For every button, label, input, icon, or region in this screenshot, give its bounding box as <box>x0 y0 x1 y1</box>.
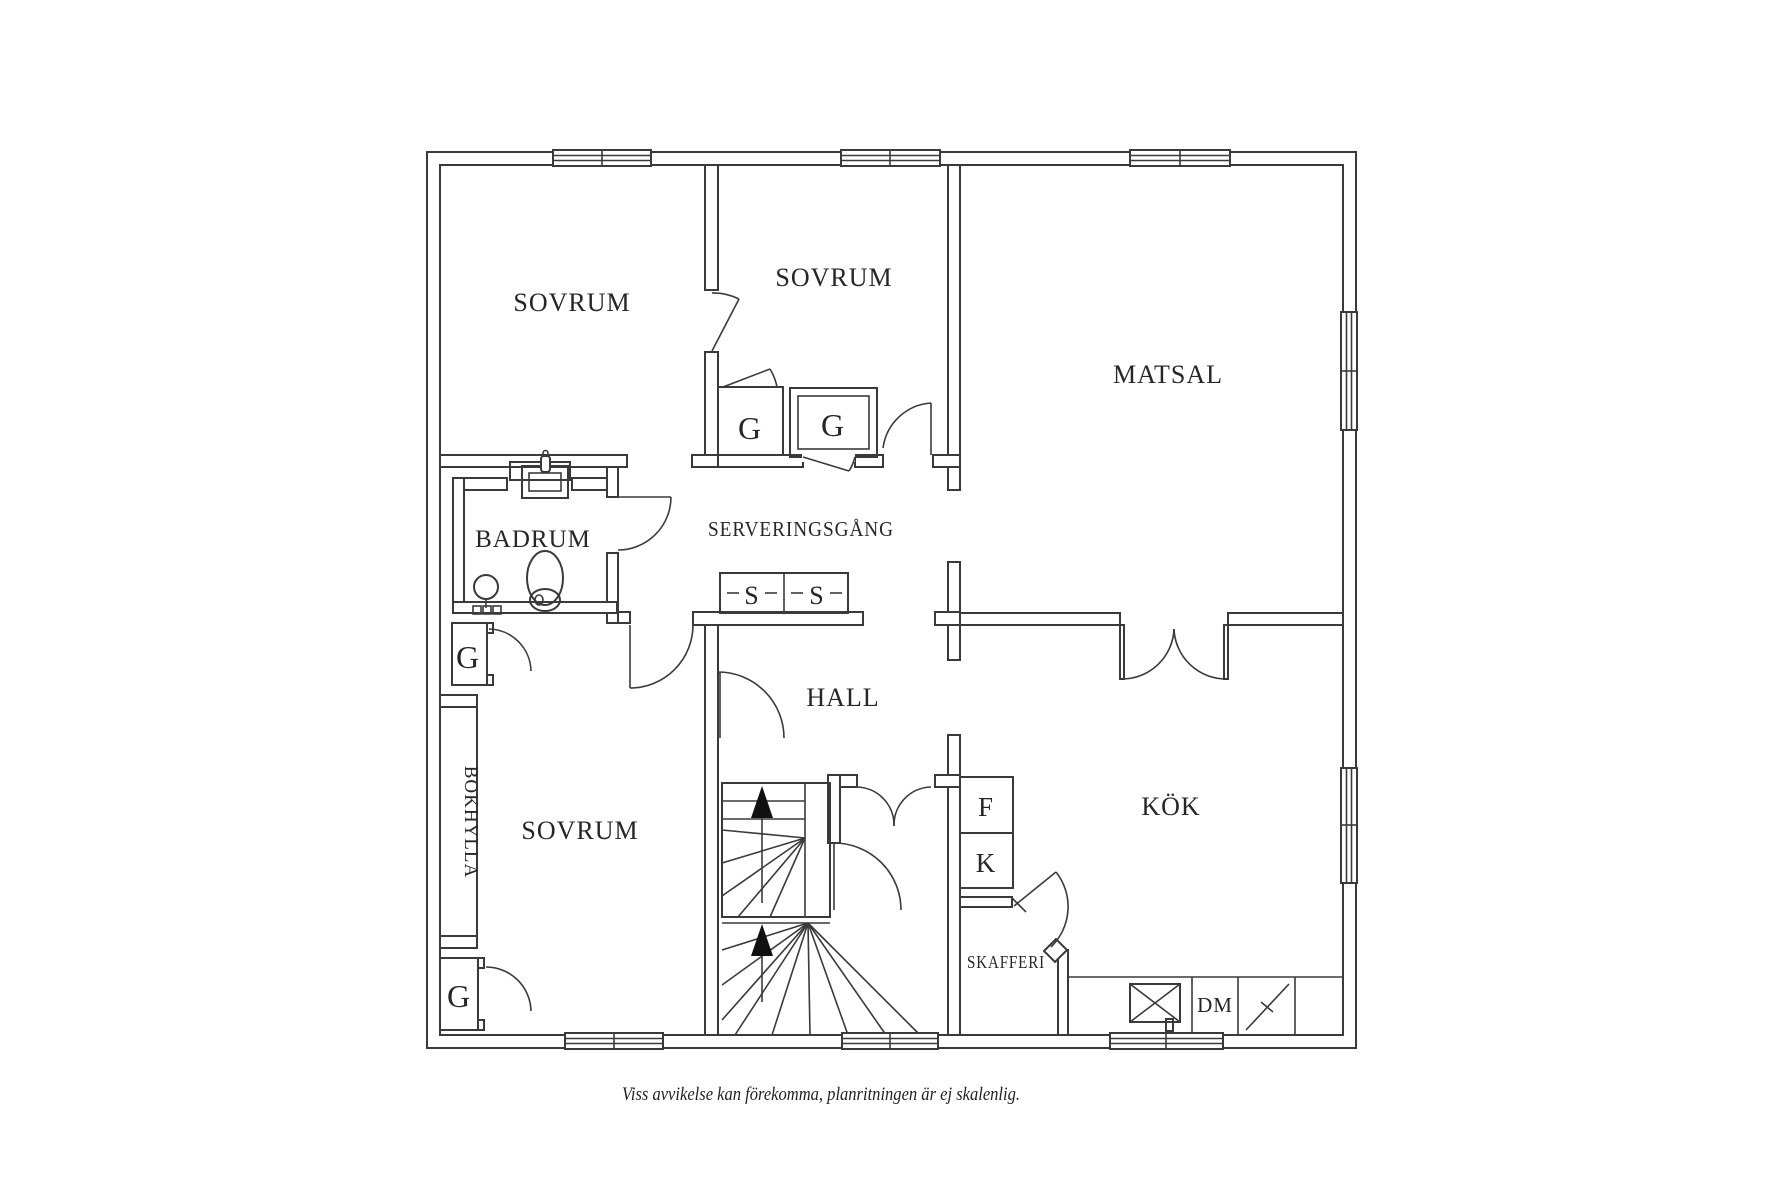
room-label-dining: MATSAL <box>1113 360 1223 389</box>
double-door-dining-right-leaf <box>1224 625 1228 679</box>
window-right-dining <box>1341 312 1357 430</box>
floorplan-drawing: SOVRUM SOVRUM MATSAL BADRUM SERVERINGSGÅ… <box>0 0 1780 1187</box>
room-label-kitchen: KÖK <box>1141 792 1200 821</box>
pedestal-basin-icon <box>474 575 498 599</box>
kitchen-faucet-icon <box>1166 1019 1173 1031</box>
faucet-icon <box>541 456 550 472</box>
room-label-bedroom-topleft: SOVRUM <box>513 288 630 317</box>
disclaimer-caption: Viss avvikelse kan förekomma, planritnin… <box>622 1084 1020 1105</box>
cabinet-s2-label: S <box>809 581 824 610</box>
window-bottom-kitchen <box>1110 1033 1223 1049</box>
room-label-bookshelf: BOKHYLLA <box>460 766 481 879</box>
wardrobe-g4-door <box>486 967 531 1011</box>
double-door-hall-right <box>894 787 931 826</box>
door-bedrooms <box>712 299 739 351</box>
window-right-kitchen <box>1341 768 1357 883</box>
wardrobe-g2-label: G <box>821 407 845 443</box>
floorplan-page: SOVRUM SOVRUM MATSAL BADRUM SERVERINGSGÅ… <box>0 0 1780 1187</box>
room-label-hall: HALL <box>806 683 879 712</box>
wardrobe-g3-door <box>489 629 531 671</box>
window-top-1 <box>553 150 651 166</box>
wardrobe-g3-label: G <box>456 639 480 675</box>
toilet-icon <box>527 551 563 605</box>
cabinet-s1-label: S <box>744 581 759 610</box>
wardrobe-g4-label: G <box>447 978 471 1014</box>
window-bottom-bedroom <box>565 1033 663 1049</box>
room-label-pantry: SKAFFERI <box>967 952 1045 972</box>
double-door-dining-left-leaf <box>1120 625 1124 679</box>
window-bottom-stair <box>842 1033 938 1049</box>
wardrobe-g1-label: G <box>738 410 762 446</box>
room-label-bathroom: BADRUM <box>475 526 591 553</box>
room-label-serving-corridor: SERVERINGSGÅNG <box>708 517 894 541</box>
freezer-label: F <box>978 792 994 822</box>
room-label-bedroom-topmiddle: SOVRUM <box>775 263 892 292</box>
double-door-hall-left <box>857 787 894 826</box>
staircase <box>722 783 920 1035</box>
window-top-3 <box>1130 150 1230 166</box>
window-top-2 <box>841 150 940 166</box>
wardrobe-g1-door <box>723 369 770 387</box>
fridge-label: K <box>976 848 997 878</box>
dishwasher-label: DM <box>1197 993 1233 1017</box>
door-pantry <box>1014 872 1056 906</box>
room-label-bedroom-bottom: SOVRUM <box>521 816 638 845</box>
wardrobes <box>440 369 1013 1030</box>
